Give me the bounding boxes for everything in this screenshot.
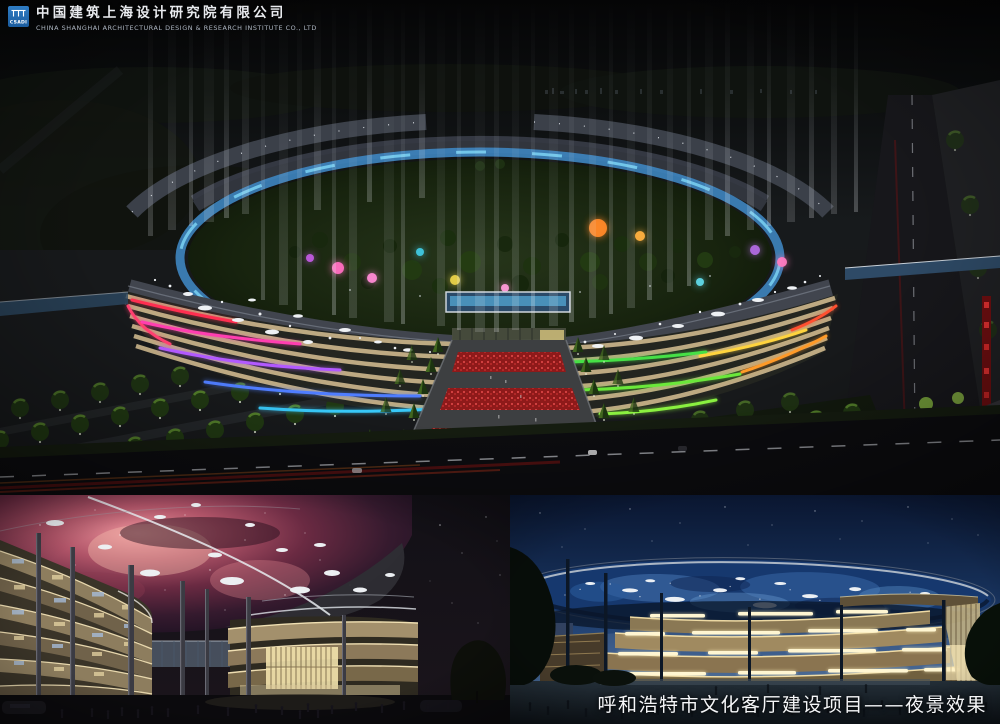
company-name-cn: 中国建筑上海设计研究院有限公司 [36,6,317,22]
vignette [0,495,510,724]
vignette [0,0,1000,495]
main-aerial-rendering-image [0,0,1000,495]
company-name-block: 中国建筑上海设计研究院有限公司 CHINA SHANGHAI ARCHITECT… [36,6,317,32]
company-name-en: CHINA SHANGHAI ARCHITECTURAL DESIGN & RE… [36,24,317,32]
company-logo: CSADI 中国建筑上海设计研究院有限公司 CHINA SHANGHAI ARC… [8,6,317,32]
logo-mark-icon: CSADI [8,6,29,27]
project-caption: 呼和浩特市文化客厅建设项目——夜景效果 [597,690,987,717]
closeup-canopy-rendering-image [0,495,510,724]
presentation-board: CSADI 中国建筑上海设计研究院有限公司 CHINA SHANGHAI ARC… [0,0,1000,724]
logo-mark-text: CSADI [10,20,27,26]
